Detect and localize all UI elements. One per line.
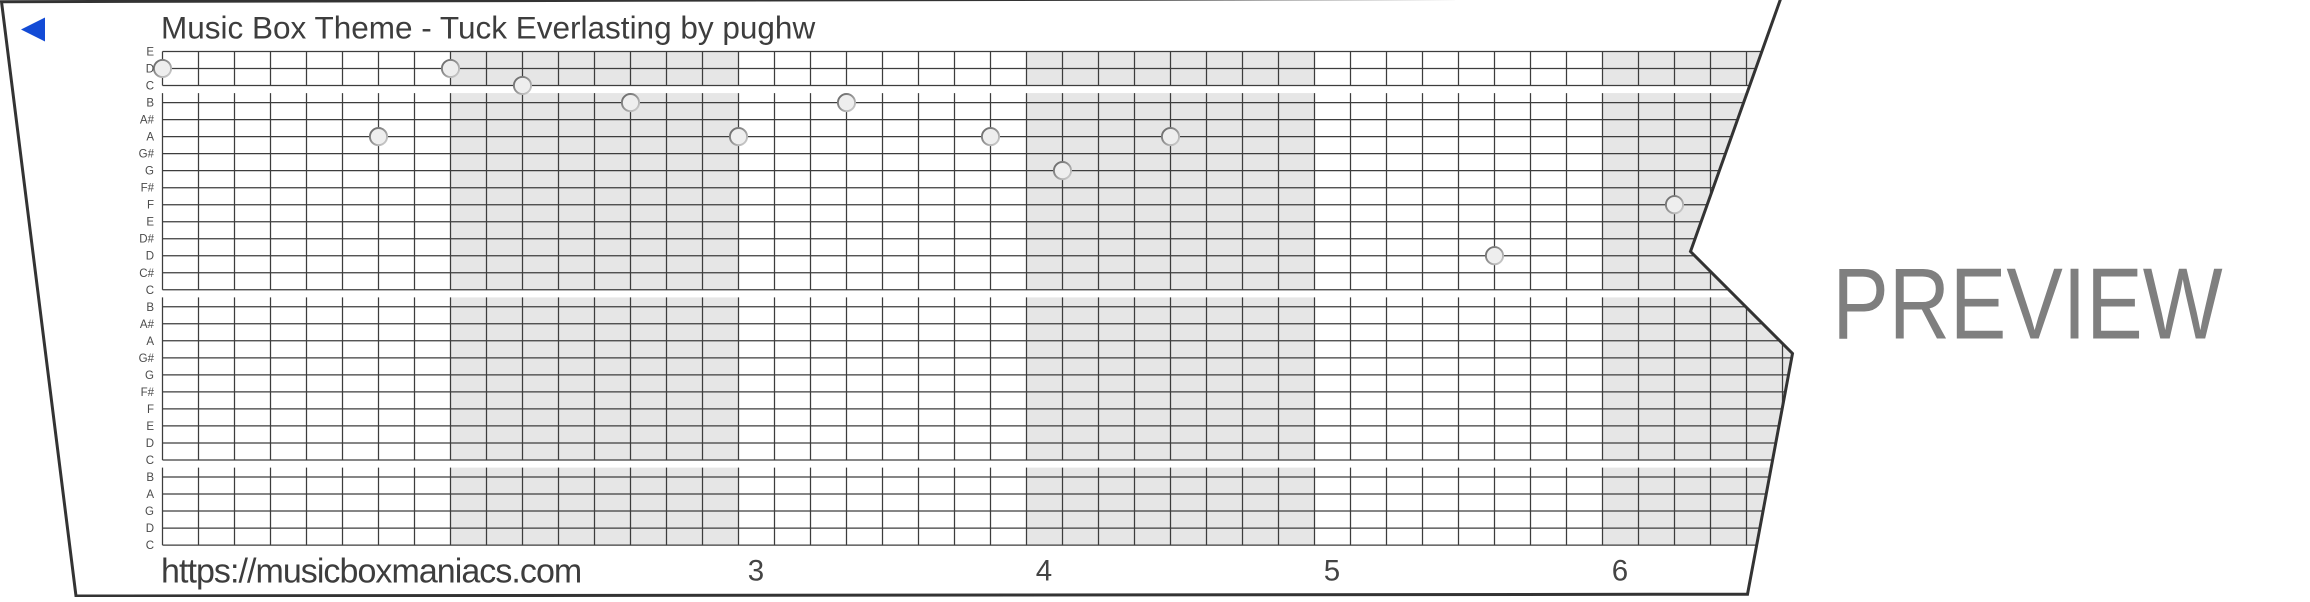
svg-text:C#: C# xyxy=(139,268,154,280)
svg-text:https://musicboxmaniacs.com: https://musicboxmaniacs.com xyxy=(161,553,581,591)
svg-text:4: 4 xyxy=(1036,555,1052,588)
svg-text:PREVIEW: PREVIEW xyxy=(1832,247,2222,360)
svg-text:E: E xyxy=(146,421,154,433)
svg-text:A: A xyxy=(146,489,154,501)
svg-text:B: B xyxy=(146,98,154,110)
svg-text:D: D xyxy=(146,64,154,76)
svg-text:E: E xyxy=(146,47,154,59)
svg-text:F#: F# xyxy=(141,387,155,399)
svg-text:B: B xyxy=(146,302,154,314)
svg-text:3: 3 xyxy=(748,555,764,588)
svg-text:F: F xyxy=(147,404,154,416)
svg-text:G: G xyxy=(145,506,154,518)
svg-text:F#: F# xyxy=(141,183,155,195)
svg-text:G: G xyxy=(145,166,154,178)
svg-text:D#: D# xyxy=(139,234,154,246)
svg-text:D: D xyxy=(146,523,154,535)
svg-text:G#: G# xyxy=(139,149,155,161)
svg-text:G#: G# xyxy=(139,353,155,365)
svg-text:6: 6 xyxy=(1612,555,1628,588)
svg-text:C: C xyxy=(146,81,154,93)
svg-text:B: B xyxy=(146,472,154,484)
svg-text:C: C xyxy=(146,285,154,297)
svg-text:Music Box Theme - Tuck Everlas: Music Box Theme - Tuck Everlasting by pu… xyxy=(161,10,815,46)
svg-text:A#: A# xyxy=(140,115,155,127)
svg-text:D: D xyxy=(146,251,154,263)
svg-text:E: E xyxy=(146,217,154,229)
svg-text:5: 5 xyxy=(1324,555,1340,588)
svg-text:G: G xyxy=(145,370,154,382)
svg-text:D: D xyxy=(146,438,154,450)
svg-text:A: A xyxy=(146,132,154,144)
svg-text:C: C xyxy=(146,455,154,467)
svg-text:F: F xyxy=(147,200,154,212)
svg-text:A: A xyxy=(146,336,154,348)
svg-text:C: C xyxy=(146,540,154,552)
svg-text:A#: A# xyxy=(140,319,155,331)
